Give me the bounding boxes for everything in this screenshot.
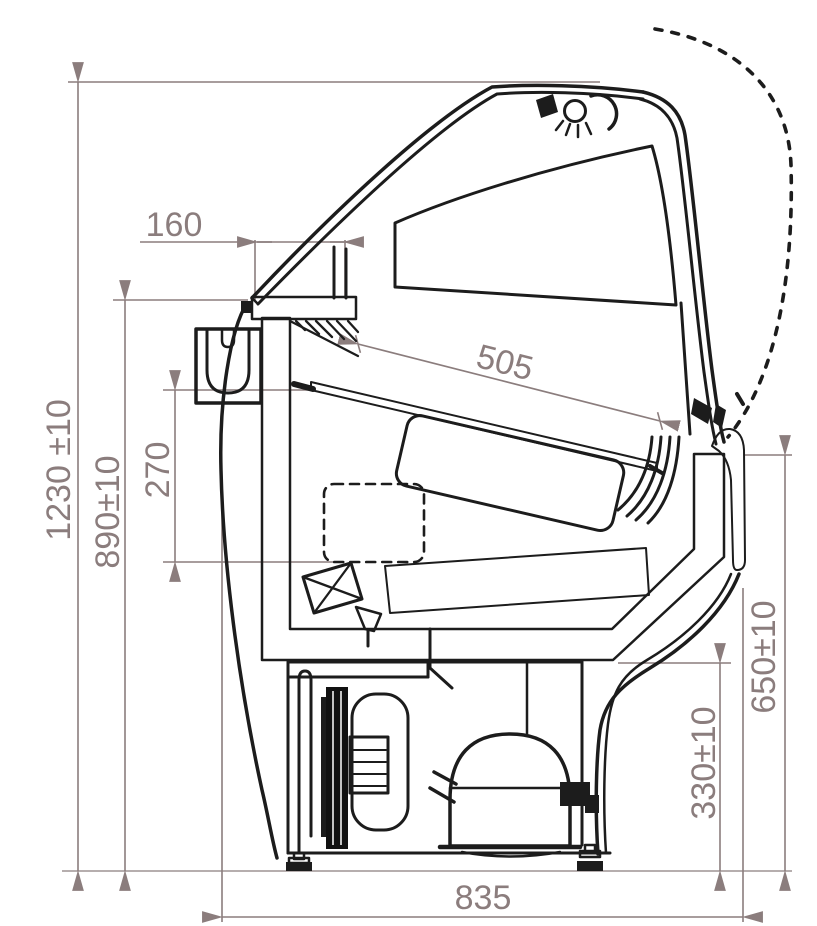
dim-machine-height-label: 330±10 (685, 706, 723, 819)
rear-outer-panel (221, 303, 277, 858)
cutting-board-shelf (241, 297, 356, 319)
dim-well-depth: 270 (139, 390, 337, 562)
foot-left (286, 853, 312, 871)
dim-display-shelf-label: 505 (473, 337, 537, 388)
dim-machine-height: 330±10 (618, 663, 731, 871)
front-bumper (712, 429, 745, 570)
cross-section-drawing: 1230 ±10 890±10 270 160 505 650±10 330±1… (0, 0, 817, 926)
drawing-sheet: 1230 ±10 890±10 270 160 505 650±10 330±1… (0, 0, 817, 926)
shelf-support-hatch (290, 321, 358, 356)
drain-funnel (356, 607, 381, 646)
dim-front-height-label: 650±10 (745, 600, 783, 713)
dim-front-height: 650±10 (745, 455, 792, 871)
canopy-inner-liner (395, 146, 676, 305)
dim-display-shelf: 505 (356, 335, 663, 430)
dim-canopy-overhang-label: 160 (146, 206, 203, 244)
compressor (440, 734, 599, 857)
evaporator-dashed-outline (324, 484, 424, 562)
air-curtain-panel (385, 548, 649, 613)
dim-counter-height-label: 890±10 (89, 455, 127, 568)
condenser-unit (321, 687, 408, 849)
dim-canopy-overhang: 160 (140, 206, 347, 300)
product-tray (394, 413, 627, 533)
lamp-icon (536, 94, 617, 137)
dim-well-depth-label: 270 (139, 442, 177, 499)
front-glass-open-dashed (655, 29, 791, 437)
fan-box (303, 563, 362, 613)
dim-overall-height-label: 1230 ±10 (40, 399, 78, 541)
dim-overall-depth-label: 835 (455, 879, 512, 917)
